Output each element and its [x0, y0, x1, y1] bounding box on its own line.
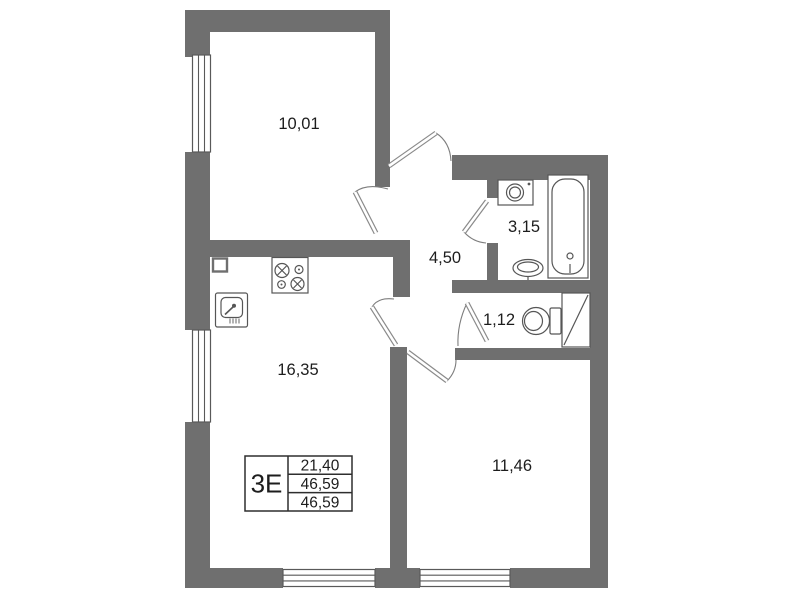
bathroom-area-label: 3,15: [508, 218, 540, 236]
wall-bath-left-lower: [487, 243, 498, 280]
bedroom-area-label: 11,46: [492, 457, 532, 475]
washing-machine-icon: [498, 180, 533, 205]
wall-hall-bedroom: [455, 348, 592, 360]
window-kitchen-left: [193, 330, 211, 422]
entrance-door: [389, 133, 451, 166]
floor-plan-page: 10,01 4,50 3,15 1,12 16,35 11,46 3Е 21,4…: [0, 0, 799, 600]
window-bedroom-bottom: [420, 570, 510, 587]
wall-top: [185, 10, 390, 32]
legend-value-2: 46,59: [301, 476, 340, 493]
wall-right: [590, 155, 608, 588]
bathroom-sink-icon: [513, 260, 543, 281]
kitchen-sink-icon: [216, 293, 248, 327]
floor-plan: 10,01 4,50 3,15 1,12 16,35 11,46 3Е 21,4…: [0, 0, 799, 600]
wall-bottom-left: [185, 568, 283, 588]
wall-left-middle: [185, 152, 210, 330]
kitchen-door: [372, 299, 396, 345]
bathroom-door: [464, 201, 487, 243]
wall-bath-left-upper: [487, 175, 498, 198]
wc-area-label: 1,12: [483, 311, 515, 329]
legend-value-1: 21,40: [301, 458, 340, 475]
wall-kitchen-top: [208, 240, 410, 257]
wall-room1-right: [375, 30, 390, 187]
apartment-type-label: 3Е: [251, 469, 283, 499]
kitchen-area-label: 16,35: [277, 361, 318, 379]
wall-left-lower: [185, 422, 210, 588]
wall-kitchen-bedroom: [390, 347, 407, 568]
vent-duct-icon: [213, 259, 227, 272]
ventilation-shaft-icon: [562, 293, 590, 347]
room1-door: [355, 187, 388, 233]
legend-value-3: 46,59: [301, 494, 340, 511]
window-kitchen-bottom: [283, 570, 375, 587]
bathtub-icon: [548, 175, 588, 278]
legend-table: 3Е 21,40 46,59 46,59: [245, 456, 352, 511]
wall-bath-wc-divider: [452, 280, 592, 293]
wall-bottom-pier: [375, 568, 420, 588]
bedroom-door: [408, 352, 456, 381]
window-room1-left: [193, 55, 211, 152]
toilet-icon: [523, 308, 562, 335]
room1-area-label: 10,01: [278, 115, 319, 133]
walls: [185, 10, 608, 588]
wall-kitchen-hall: [393, 257, 410, 297]
wall-left-upper: [185, 10, 210, 57]
hallway-area-label: 4,50: [429, 249, 461, 267]
stove-icon: [272, 258, 308, 294]
